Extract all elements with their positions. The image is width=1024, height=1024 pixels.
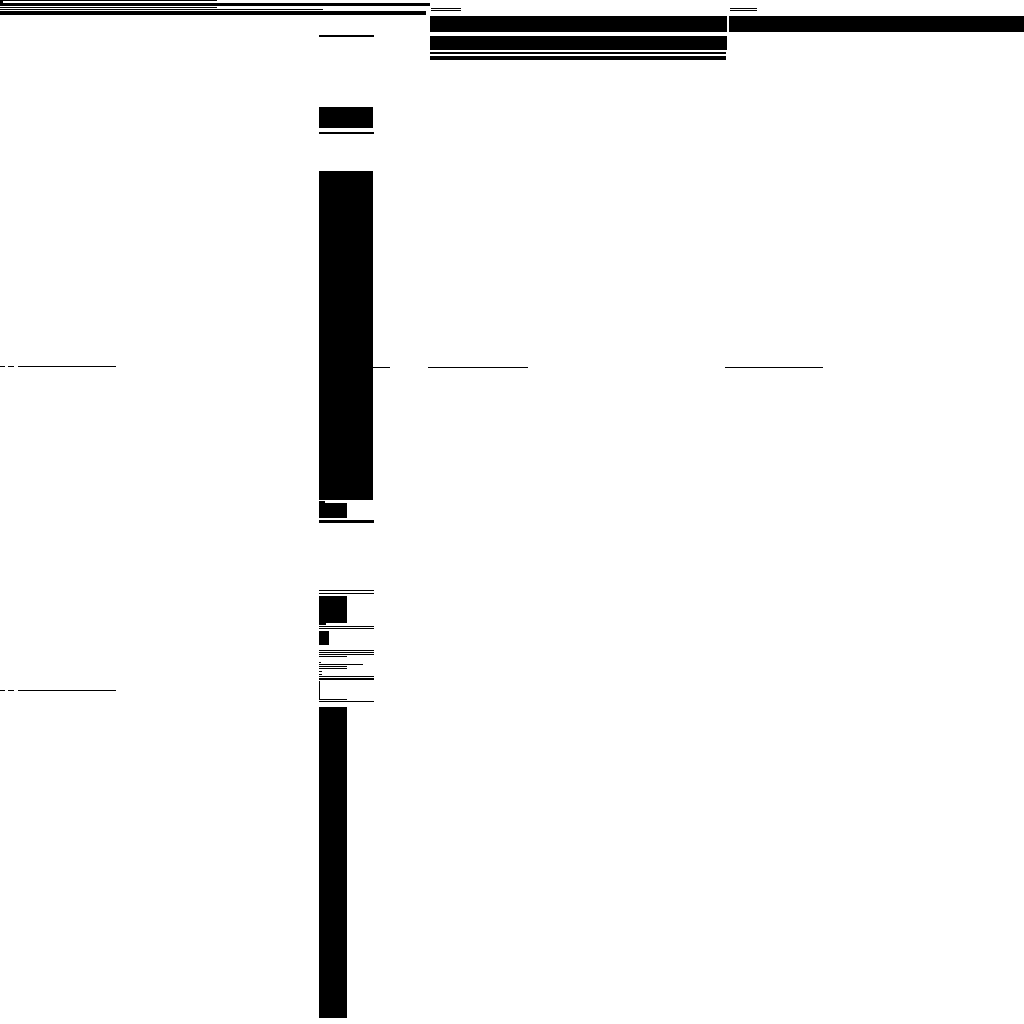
- masthead-rule-3: [0, 9, 323, 10]
- midsection-tick-1: [319, 623, 326, 625]
- header-left-col-bar-3: [430, 56, 726, 60]
- midsection-rule-d1: [319, 664, 363, 665]
- midsection-rule-c4: [319, 656, 347, 657]
- midsection-rule-e1: [319, 676, 374, 677]
- mid-rule-row1-b: [725, 367, 823, 368]
- midsection-rule-b2: [319, 628, 374, 629]
- left-rule-row2: [18, 690, 116, 691]
- midsection-rule-c2: [319, 652, 374, 653]
- redacted-page-canvas: [0, 0, 1024, 1024]
- header-left-col-dash-2: [431, 10, 461, 11]
- header-left-col-rule: [430, 52, 726, 54]
- midsection-rule-f1: [319, 699, 347, 700]
- left-rule-row2-tick-1: [0, 690, 5, 691]
- midsection-rule-a1: [319, 590, 374, 591]
- midsection-small-rect: [319, 631, 329, 645]
- midsection-rule-d2: [319, 666, 347, 667]
- midsection-square: [319, 596, 347, 623]
- header-left-col-bar-1: [430, 16, 727, 32]
- header-left-col-bar-2: [430, 36, 727, 50]
- midsection-rule-b1: [319, 626, 374, 627]
- midsection-rule-c3: [319, 654, 374, 655]
- masthead-rule-top: [0, 0, 217, 1]
- midsection-tick-2: [319, 671, 322, 672]
- left-rule-row2-tick-2: [8, 690, 14, 691]
- left-rule-row1: [18, 366, 116, 367]
- center-tall-rect: [319, 171, 373, 500]
- midsection-dot: [319, 662, 321, 663]
- masthead-bar-1: [0, 3, 430, 6]
- header-left-col-dash-1: [431, 8, 461, 9]
- center-rule-3: [319, 520, 374, 523]
- left-rule-row1-tick-1: [0, 366, 5, 367]
- midsection-rule-d3: [319, 668, 347, 669]
- center-block-1: [319, 107, 373, 128]
- left-rule-row1-tick-2: [8, 366, 14, 367]
- masthead-bar-2: [0, 11, 426, 15]
- masthead-rule-2: [0, 7, 217, 8]
- center-side-rule: [373, 367, 390, 368]
- header-right-col-dash-2: [730, 10, 757, 11]
- midsection-rule-f2: [319, 701, 374, 702]
- midsection-tick-3: [319, 674, 322, 675]
- midsection-vertical-rule: [319, 681, 320, 699]
- midsection-rule-c1: [319, 650, 374, 651]
- header-right-col-bar: [729, 16, 1024, 32]
- midsection-rule-a2: [319, 593, 374, 594]
- header-right-col-dash-1: [730, 8, 757, 9]
- bottom-tall-bar: [319, 707, 347, 1018]
- center-rule-top: [319, 35, 374, 37]
- center-rule-2: [319, 132, 374, 134]
- midsection-rule-e2: [319, 678, 374, 680]
- mid-rule-row1-a: [428, 367, 528, 368]
- center-block-2: [319, 503, 347, 518]
